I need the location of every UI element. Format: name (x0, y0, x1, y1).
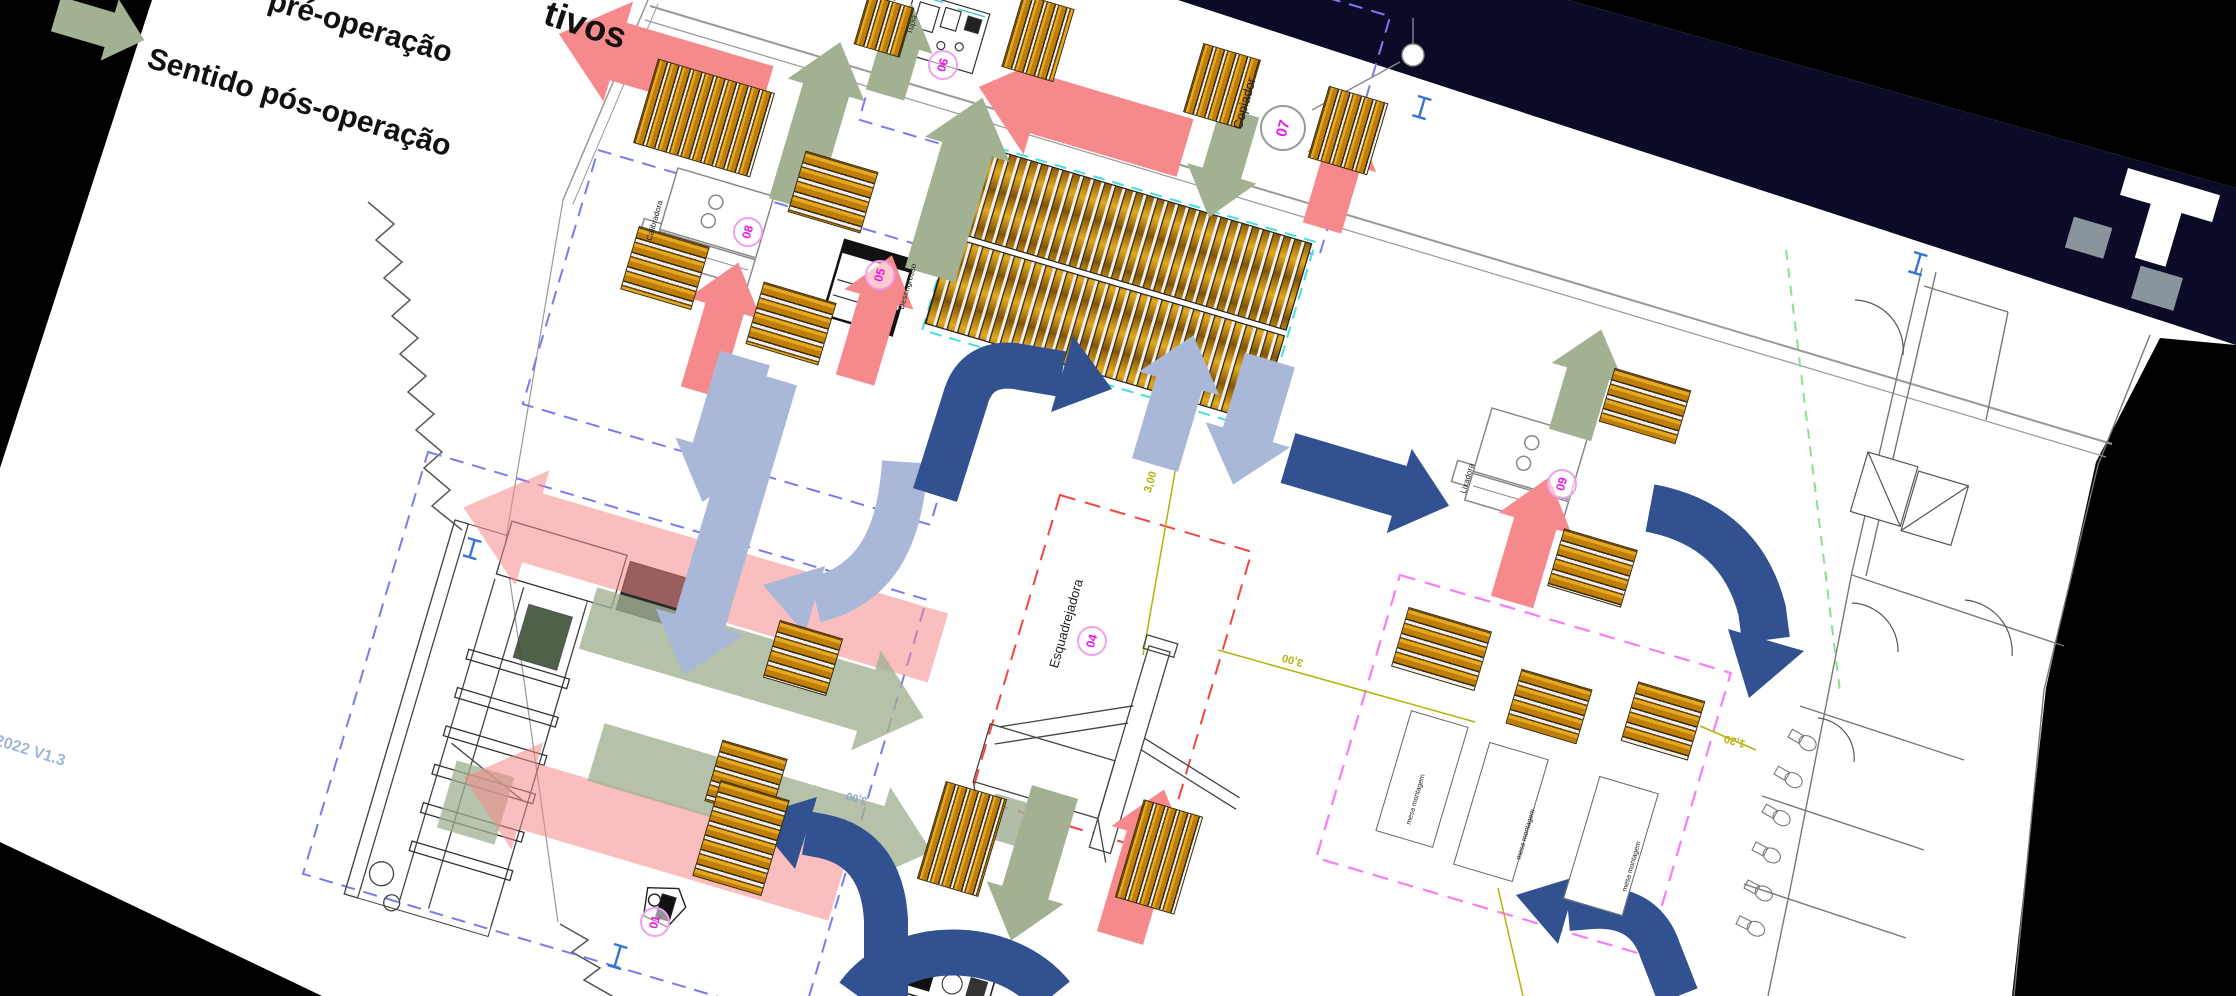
bathroom-fixtures (1735, 727, 1819, 939)
machine-09-badge: 09 (1547, 469, 1577, 499)
screenshot-stage: pré-operação Sentido pós-operação tivos … (0, 0, 2236, 996)
legend-post-arrow-icon (47, 0, 153, 71)
machine-04-badge: 04 (1077, 626, 1107, 656)
machine-07-badge: 07 (1260, 105, 1306, 151)
machine-01-badge: 01 (640, 907, 670, 937)
zone-line-green (1786, 250, 1840, 692)
machine-05-badge: 05 (865, 260, 895, 290)
floor-plan (0, 0, 2236, 996)
section-break-zigzag (368, 202, 612, 996)
machine-06-badge: 06 (928, 50, 958, 80)
window-x-boxes (1849, 452, 1969, 545)
machine-04-drawing (959, 599, 1276, 903)
machine-08-badge: 08 (733, 217, 763, 247)
rooms-walls (1744, 268, 2150, 996)
